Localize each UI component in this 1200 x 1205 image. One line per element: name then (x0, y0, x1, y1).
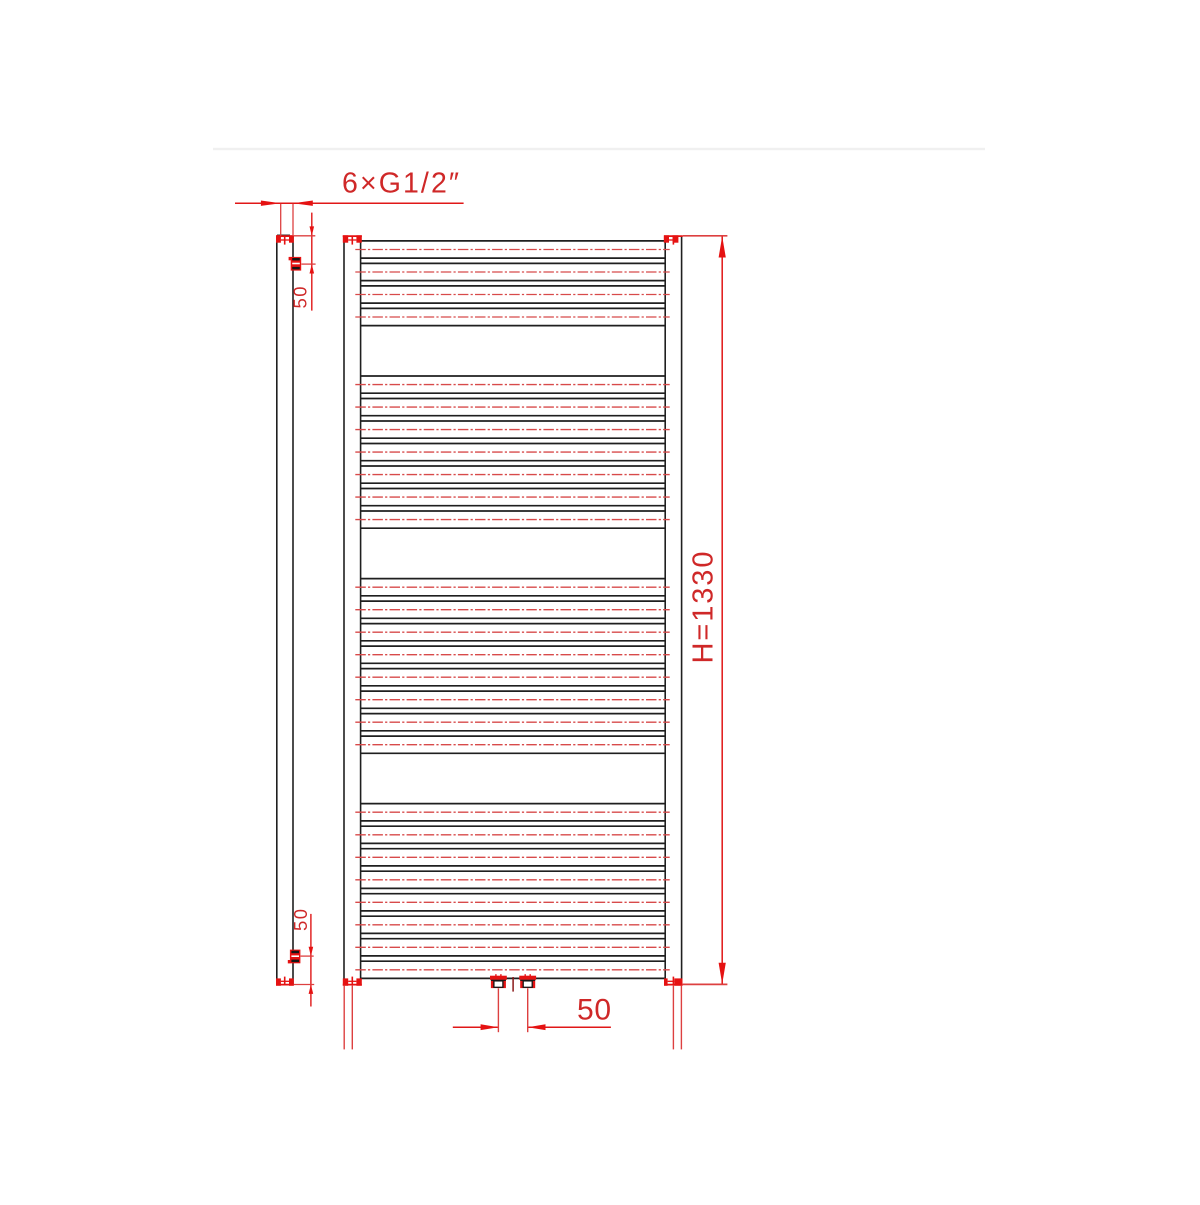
svg-text:50: 50 (290, 285, 311, 309)
svg-text:6×G1/2″: 6×G1/2″ (342, 168, 461, 200)
svg-text:H=1330: H=1330 (688, 551, 720, 664)
svg-text:50: 50 (577, 994, 613, 1027)
svg-text:50: 50 (290, 907, 311, 931)
